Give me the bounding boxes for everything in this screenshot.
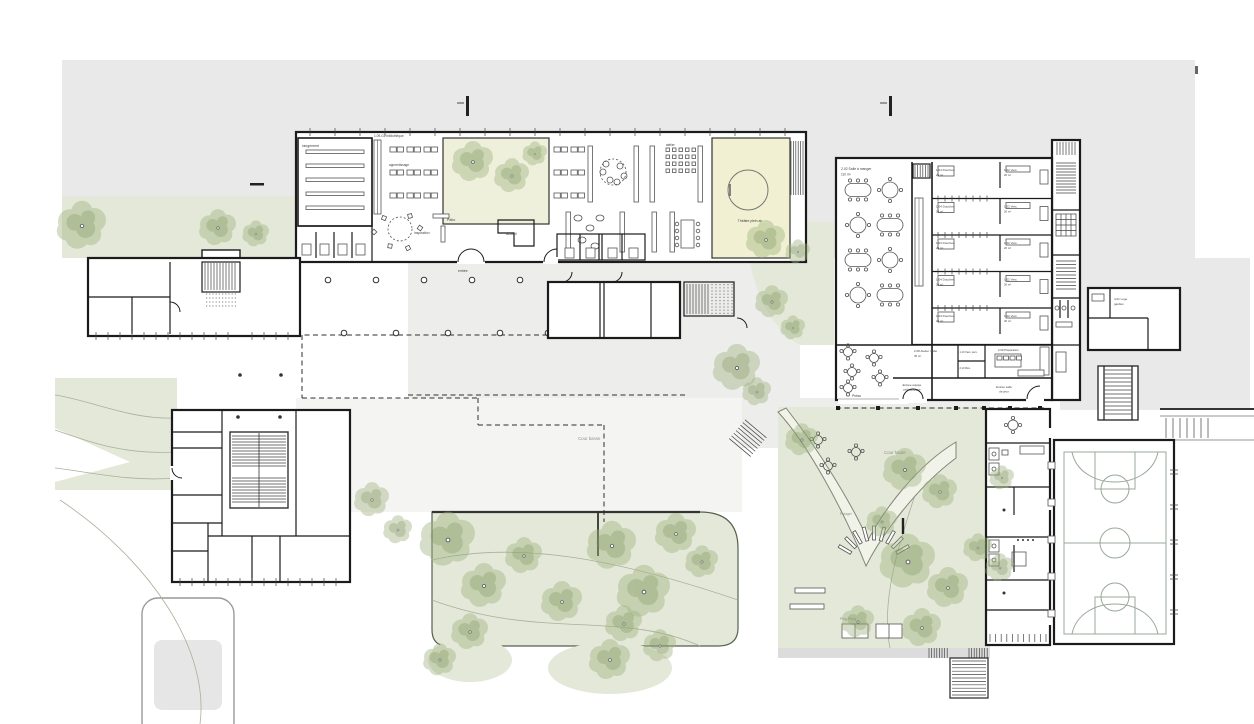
label-entrance: entrée xyxy=(458,269,468,273)
label-lockers: 1.02 Vest. xyxy=(1004,168,1018,172)
label-garden: Potager xyxy=(840,512,853,516)
label-lockers-area: 26 m² xyxy=(1004,173,1011,177)
lodge-stair xyxy=(1098,366,1138,420)
label-showers: 1.04 Douches xyxy=(936,314,955,318)
label-workshop: atelier xyxy=(666,143,676,147)
label-showers-area: 24 m² xyxy=(936,173,943,177)
label-storage: rangement xyxy=(302,144,319,148)
label-showers-area: 24 m² xyxy=(936,246,943,250)
label-staff-lockers: 1.10 Vest. pers. xyxy=(960,350,978,354)
street-lines xyxy=(1160,416,1254,440)
building-north-wing: rangement 1.09-G2 bibliothèque apprentis… xyxy=(296,128,806,273)
bench xyxy=(795,588,825,593)
label-showers-area: 24 m² xyxy=(936,210,943,214)
label-games-entrance-1: Entrée salle xyxy=(996,385,1012,389)
label-learning: apprentissage xyxy=(389,163,409,167)
access-road-island xyxy=(154,640,222,710)
label-dining: 2.02 Salle à manger xyxy=(841,167,872,171)
label-lockers-area: 26 m² xyxy=(1004,283,1011,287)
label-lockers: 1.02 Vest. xyxy=(1004,241,1018,245)
building-east: 2.02 Salle à manger 110 m² 1.04 Douches xyxy=(836,140,1080,404)
bench xyxy=(790,604,824,609)
label-lab-area: 45 m² xyxy=(914,354,921,358)
building-west-wing xyxy=(88,250,300,340)
label-lockers: 1.02 Vest. xyxy=(1004,278,1018,282)
gymnasium xyxy=(1048,440,1178,644)
label-showers: 1.04 Douches xyxy=(936,205,955,209)
label-games-entrance-2: de jeux xyxy=(999,390,1009,394)
label-showers: 1.04 Douches xyxy=(936,241,955,245)
building-annex xyxy=(986,409,1054,645)
survey-mark xyxy=(1195,66,1198,74)
label-lab: 2.08 Atelier / labo xyxy=(914,349,938,353)
crosswalk-hatch xyxy=(1166,418,1208,438)
building-tower xyxy=(170,410,350,586)
label-lower-yard: Cour basse xyxy=(578,436,601,441)
label-lockers: 1.02 Vest. xyxy=(1004,314,1018,318)
floor-plan-page: rangement 1.09-G2 bibliothèque apprentis… xyxy=(0,0,1254,724)
label-ping-pong: Ping-Pong xyxy=(840,617,856,621)
label-inspiration: inspiration xyxy=(414,231,430,235)
tower-main-stair xyxy=(230,432,288,508)
label-reserve: 2.10 Rés. xyxy=(960,366,971,370)
label-showers-area: 24 m² xyxy=(936,283,943,287)
label-showers-area: 24 m² xyxy=(936,319,943,323)
label-reception: accueil xyxy=(506,232,517,236)
label-dining-area: 110 m² xyxy=(841,173,851,177)
label-lockers-area: 26 m² xyxy=(1004,210,1011,214)
label-caretaker-2: gardien xyxy=(1114,302,1124,306)
label-theatre: Théâtre plein air xyxy=(738,219,763,223)
label-lockers: 1.02 Vest. xyxy=(1004,205,1018,209)
label-patio: Patio xyxy=(447,218,455,222)
label-showers: 1.04 Douches xyxy=(936,168,955,172)
label-caretaker-1: 4.01 Loge xyxy=(1114,297,1128,301)
label-showers: 1.04 Douches xyxy=(936,278,955,282)
label-staff-entrance-2: pédagogique xyxy=(903,388,921,392)
label-lockers-area: 26 m² xyxy=(1004,246,1011,250)
label-preau: Préau xyxy=(852,394,861,398)
label-upper-yard: Cour haute xyxy=(884,450,906,455)
label-prep: 2.09 Préparation xyxy=(998,348,1019,352)
site-plan-drawing: rangement 1.09-G2 bibliothèque apprentis… xyxy=(0,0,1254,724)
label-staff-entrance-1: Entrée équipe xyxy=(903,383,922,387)
label-lockers-area: 26 m² xyxy=(1004,319,1011,323)
label-library: 1.09-G2 bibliothèque xyxy=(374,134,404,138)
